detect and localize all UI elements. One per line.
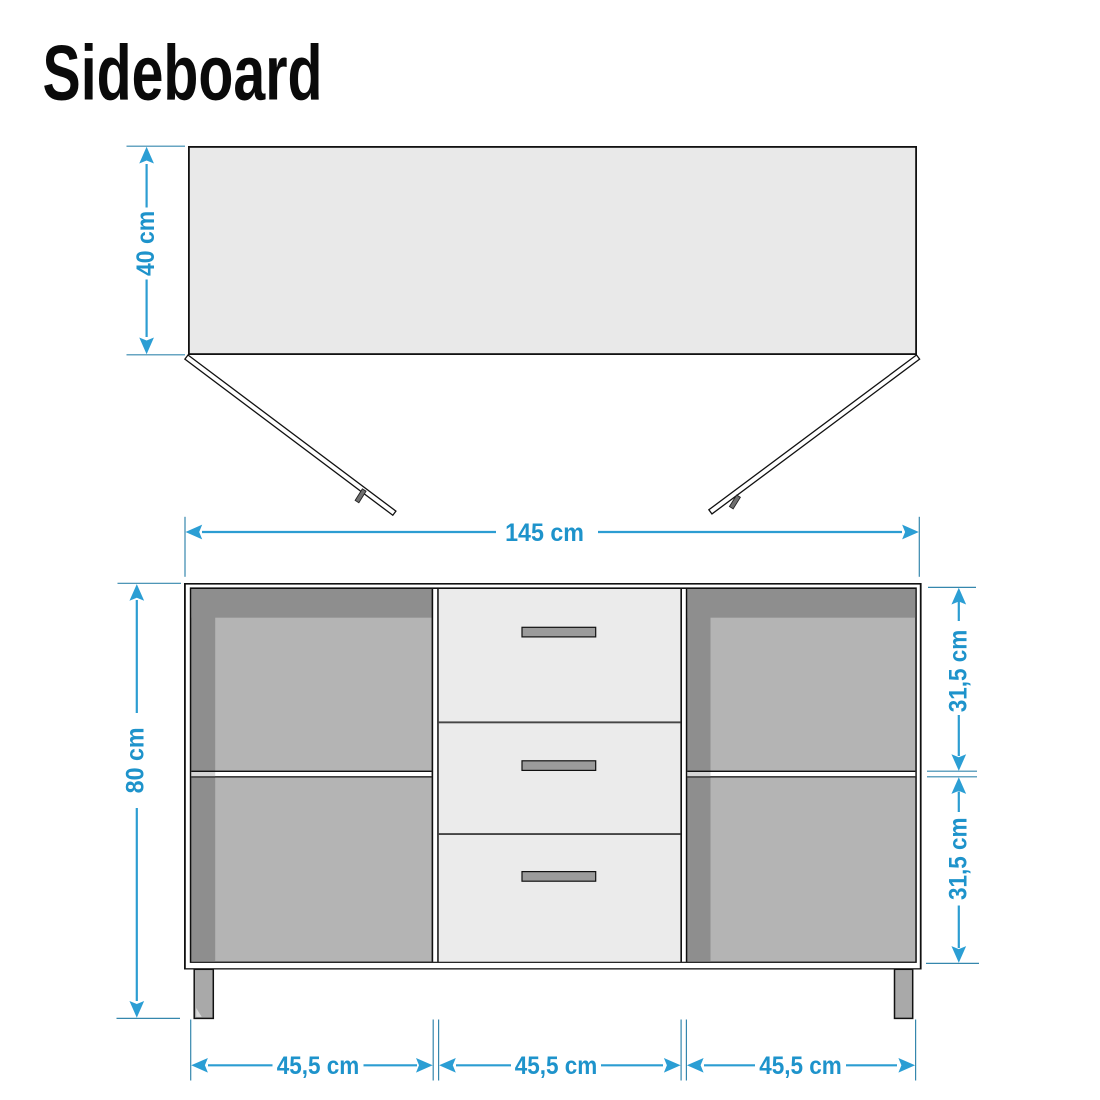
svg-text:145 cm: 145 cm xyxy=(505,519,584,547)
svg-text:45,5 cm: 45,5 cm xyxy=(277,1052,360,1080)
svg-text:45,5 cm: 45,5 cm xyxy=(515,1052,598,1080)
svg-text:31,5 cm: 31,5 cm xyxy=(944,818,972,901)
svg-text:45,5 cm: 45,5 cm xyxy=(759,1052,842,1080)
svg-text:Sideboard: Sideboard xyxy=(43,29,323,117)
svg-text:31,5 cm: 31,5 cm xyxy=(944,630,972,713)
svg-text:80 cm: 80 cm xyxy=(122,727,150,793)
svg-text:40 cm: 40 cm xyxy=(132,211,160,276)
